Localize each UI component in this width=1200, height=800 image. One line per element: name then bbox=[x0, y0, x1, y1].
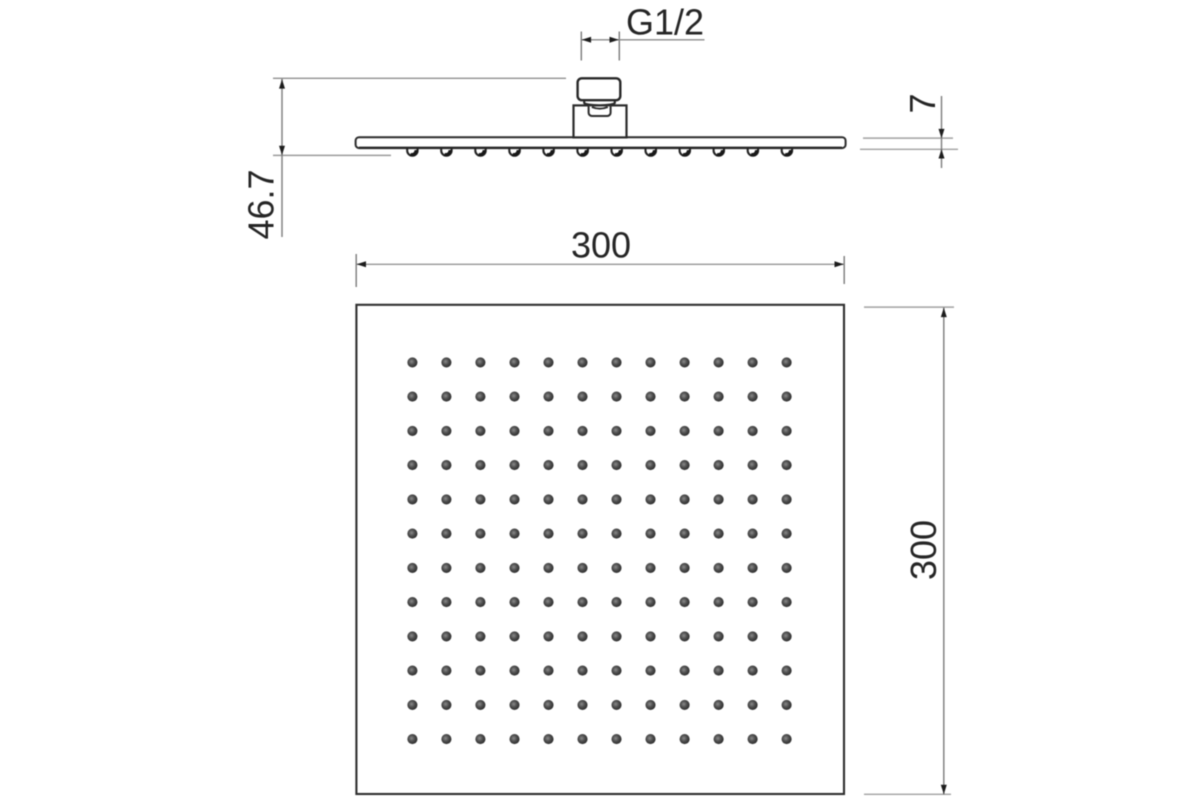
svg-text:300: 300 bbox=[571, 225, 631, 266]
svg-text:G1/2: G1/2 bbox=[626, 2, 704, 43]
svg-text:300: 300 bbox=[903, 520, 944, 580]
svg-text:7: 7 bbox=[902, 93, 943, 113]
svg-text:46.7: 46.7 bbox=[241, 169, 282, 239]
